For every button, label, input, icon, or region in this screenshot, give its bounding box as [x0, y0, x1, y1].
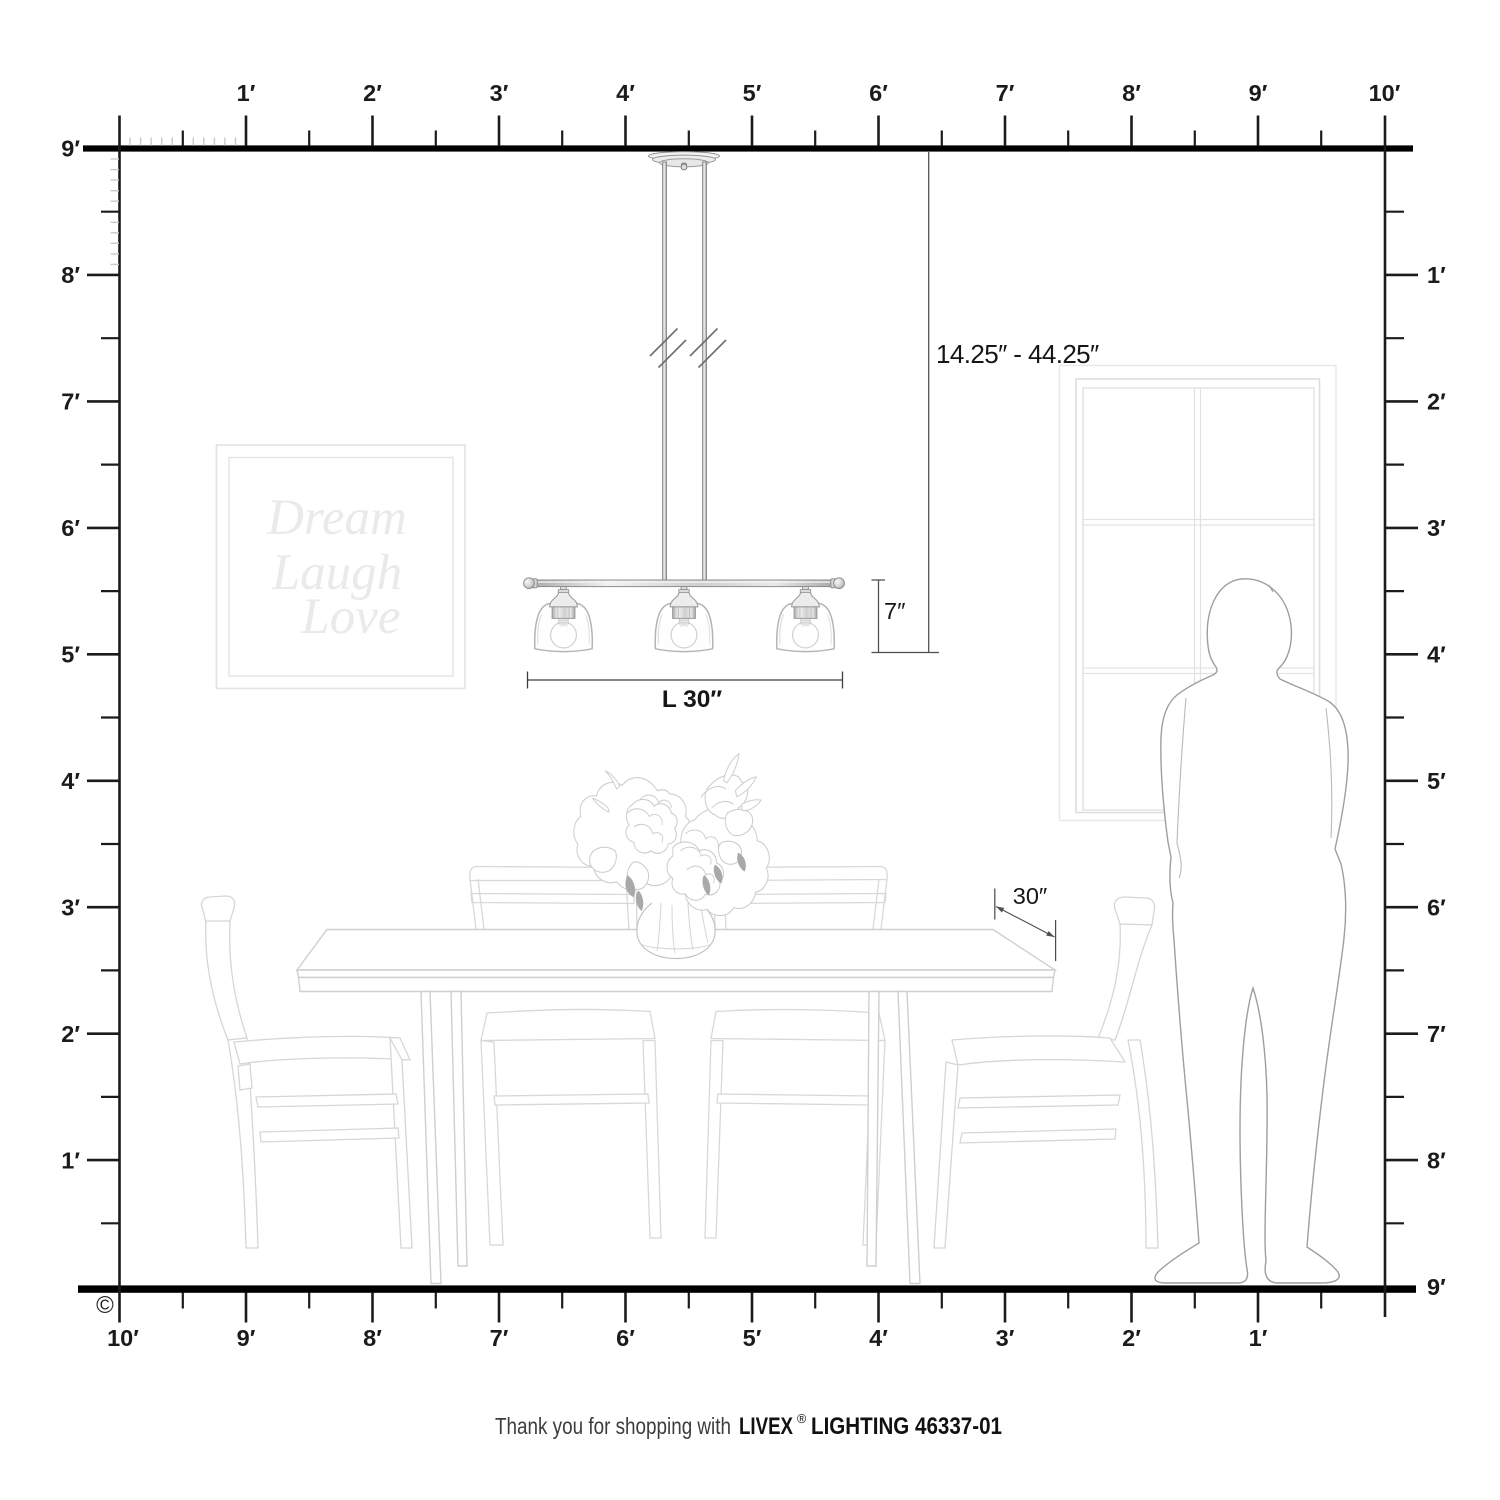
svg-text:2′: 2′ — [363, 80, 382, 106]
svg-text:10′: 10′ — [1369, 80, 1401, 106]
svg-text:9′: 9′ — [237, 1325, 256, 1351]
svg-text:5′: 5′ — [743, 1325, 762, 1351]
svg-text:©: © — [96, 1292, 114, 1319]
svg-text:2′: 2′ — [1122, 1325, 1141, 1351]
svg-text:8′: 8′ — [1122, 80, 1141, 106]
svg-text:4′: 4′ — [1427, 642, 1446, 668]
svg-text:8′: 8′ — [61, 262, 80, 288]
svg-text:7′: 7′ — [490, 1325, 509, 1351]
svg-text:4′: 4′ — [869, 1325, 888, 1351]
svg-text:3′: 3′ — [1427, 515, 1446, 541]
svg-text:3′: 3′ — [490, 80, 509, 106]
svg-text:1′: 1′ — [1427, 262, 1446, 288]
svg-text:LIVEX: LIVEX — [739, 1413, 794, 1440]
svg-text:7′: 7′ — [996, 80, 1015, 106]
svg-text:Thank you for shopping with: Thank you for shopping with — [495, 1413, 731, 1439]
svg-text:Dream: Dream — [266, 490, 407, 546]
svg-text:9′: 9′ — [1427, 1274, 1446, 1300]
svg-text:4′: 4′ — [616, 80, 635, 106]
svg-text:2′: 2′ — [61, 1021, 80, 1047]
svg-text:9′: 9′ — [1249, 80, 1268, 106]
svg-text:LIGHTING 46337-01: LIGHTING 46337-01 — [811, 1413, 1002, 1440]
svg-text:5′: 5′ — [743, 80, 762, 106]
svg-text:7′: 7′ — [1427, 1021, 1446, 1047]
svg-text:5′: 5′ — [61, 642, 80, 668]
svg-text:7′: 7′ — [61, 389, 80, 415]
svg-text:10′: 10′ — [107, 1325, 139, 1351]
svg-text:6′: 6′ — [616, 1325, 635, 1351]
svg-text:®: ® — [797, 1412, 807, 1426]
svg-text:1′: 1′ — [1249, 1325, 1268, 1351]
svg-text:1′: 1′ — [237, 80, 256, 106]
svg-text:6′: 6′ — [61, 515, 80, 541]
svg-text:14.25″ - 44.25″: 14.25″ - 44.25″ — [936, 339, 1099, 369]
svg-text:L 30″: L 30″ — [662, 686, 723, 713]
svg-text:8′: 8′ — [1427, 1147, 1446, 1173]
svg-text:7″: 7″ — [884, 598, 905, 624]
svg-text:4′: 4′ — [61, 768, 80, 794]
svg-text:3′: 3′ — [61, 894, 80, 920]
svg-text:9′: 9′ — [61, 136, 80, 162]
svg-text:1′: 1′ — [61, 1147, 80, 1173]
svg-text:6′: 6′ — [1427, 894, 1446, 920]
svg-text:8′: 8′ — [363, 1325, 382, 1351]
svg-text:2′: 2′ — [1427, 389, 1446, 415]
svg-text:6′: 6′ — [869, 80, 888, 106]
svg-text:3′: 3′ — [996, 1325, 1015, 1351]
svg-text:Love: Love — [300, 589, 400, 645]
svg-text:5′: 5′ — [1427, 768, 1446, 794]
svg-text:30″: 30″ — [1013, 883, 1047, 909]
